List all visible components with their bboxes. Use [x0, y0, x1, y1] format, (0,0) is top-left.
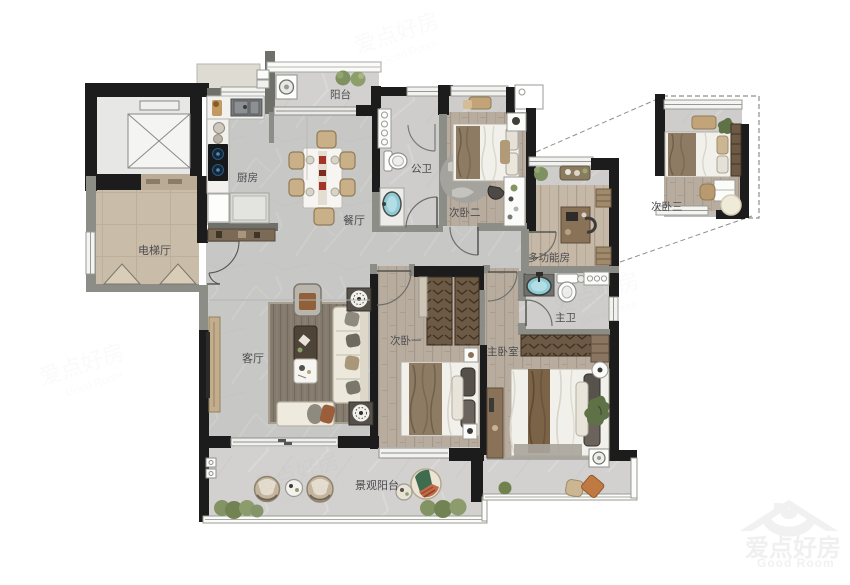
svg-text:次卧一: 次卧一: [390, 334, 422, 347]
svg-text:多功能房: 多功能房: [528, 251, 570, 264]
svg-text:主卧室: 主卧室: [487, 345, 519, 358]
svg-text:Good Room: Good Room: [757, 556, 835, 570]
svg-text:客厅: 客厅: [242, 351, 264, 365]
svg-text:次卧二: 次卧二: [449, 206, 481, 219]
svg-text:阳台: 阳台: [330, 88, 351, 101]
svg-text:电梯厅: 电梯厅: [138, 244, 171, 257]
svg-text:厨房: 厨房: [237, 171, 258, 184]
svg-text:景观阳台: 景观阳台: [355, 478, 399, 492]
svg-text:公卫: 公卫: [411, 163, 432, 175]
svg-text:餐厅: 餐厅: [343, 213, 365, 227]
svg-text:次卧三: 次卧三: [651, 200, 683, 213]
